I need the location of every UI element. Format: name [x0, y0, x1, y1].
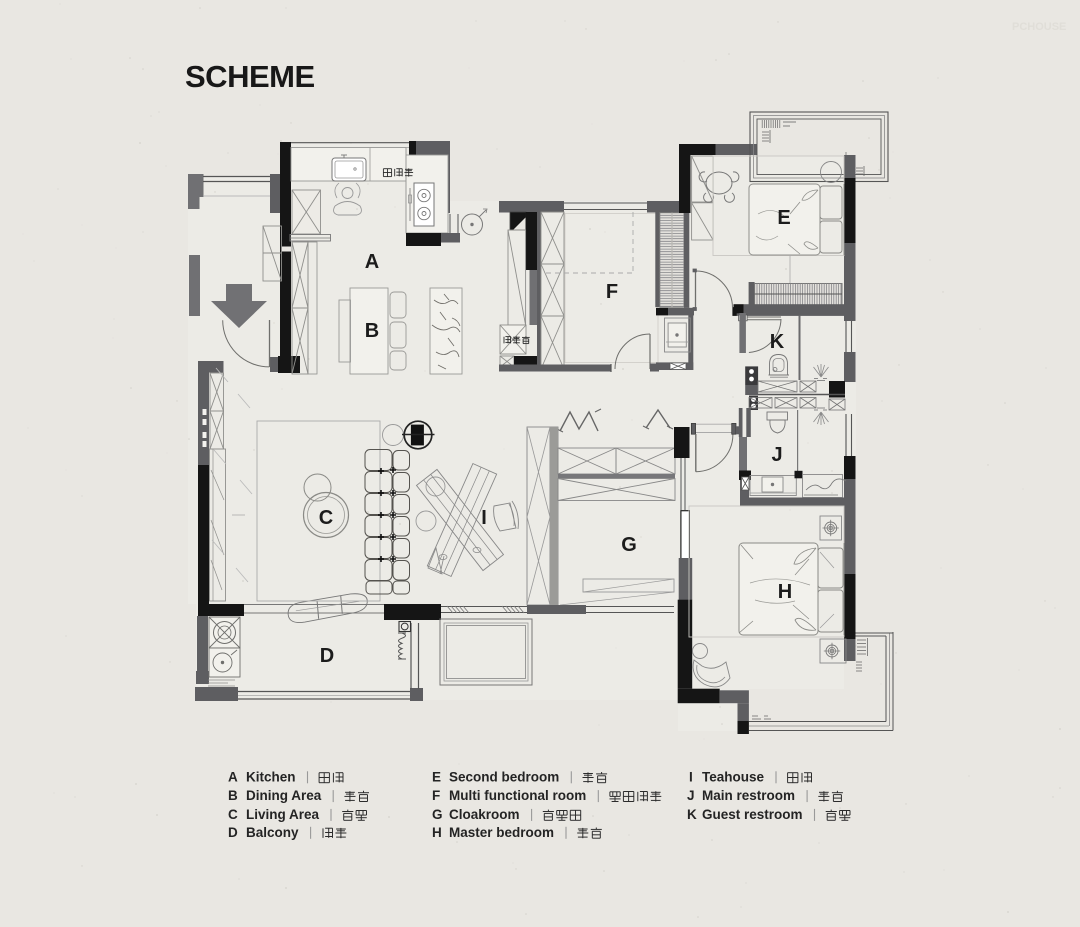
svg-text:H: H [432, 825, 442, 840]
svg-text:Teahouse: Teahouse [702, 769, 765, 784]
svg-text:F: F [606, 281, 618, 303]
svg-text:Kitchen: Kitchen [246, 769, 296, 784]
svg-text:Living Area: Living Area [246, 807, 320, 822]
svg-text:Cloakroom: Cloakroom [449, 807, 520, 822]
svg-text:I: I [689, 769, 693, 784]
svg-text:Dining Area: Dining Area [246, 788, 322, 803]
svg-text:A: A [365, 251, 379, 273]
svg-text:C: C [319, 507, 333, 529]
svg-text:H: H [778, 581, 792, 603]
svg-text:C: C [228, 807, 238, 822]
svg-text:I: I [481, 507, 487, 529]
svg-text:K: K [687, 807, 697, 822]
svg-text:Second bedroom: Second bedroom [449, 769, 559, 784]
svg-text:Guest restroom: Guest restroom [702, 807, 803, 822]
svg-text:Master bedroom: Master bedroom [449, 825, 554, 840]
svg-text:K: K [770, 331, 785, 353]
svg-text:D: D [320, 645, 334, 667]
svg-text:E: E [432, 769, 441, 784]
svg-text:J: J [771, 444, 782, 466]
svg-text:B: B [365, 320, 379, 342]
svg-text:E: E [777, 207, 790, 229]
svg-text:A: A [228, 769, 238, 784]
svg-text:Balcony: Balcony [246, 825, 299, 840]
svg-text:G: G [432, 807, 443, 822]
svg-text:Main restroom: Main restroom [702, 788, 795, 803]
svg-text:PCHOUSE: PCHOUSE [1012, 21, 1066, 33]
svg-text:B: B [228, 788, 238, 803]
svg-text:D: D [228, 825, 238, 840]
svg-text:F: F [432, 788, 440, 803]
svg-text:J: J [687, 788, 695, 803]
svg-text:SCHEME: SCHEME [185, 59, 315, 94]
svg-text:Multi functional room: Multi functional room [449, 788, 586, 803]
svg-text:G: G [621, 534, 637, 556]
